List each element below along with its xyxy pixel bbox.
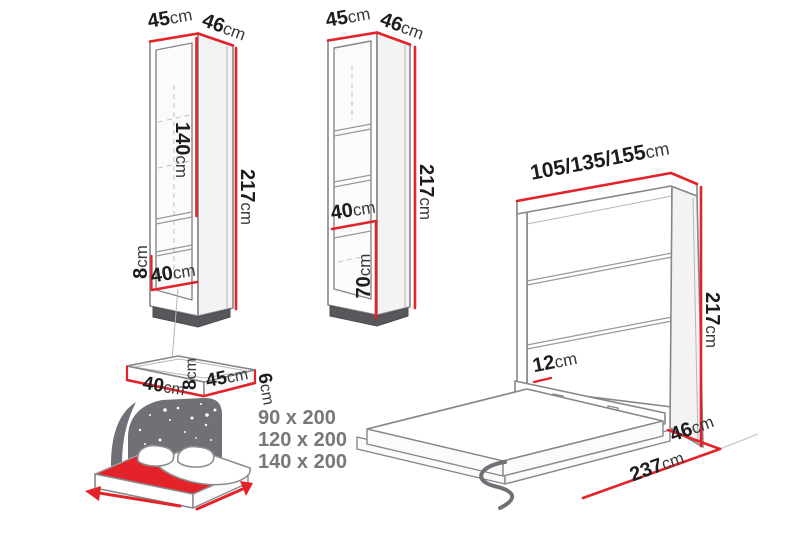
wall-bed-open-depth-label: 237cm — [627, 446, 687, 486]
bottom-shelf-height-label: 8cm — [180, 358, 201, 390]
bed-illustration — [85, 398, 253, 509]
wall-bed-side-panel — [670, 186, 703, 447]
size-option-2: 120 x 200 — [258, 429, 347, 451]
bed-pillow-left — [138, 446, 174, 467]
furniture-dimensions-diagram: 45cm 46cm 140cm 217cm 8cm 40cm 45cm 46cm… — [0, 0, 800, 533]
bed-pillow-right — [178, 447, 214, 468]
cabinet-open-height-label: 217cm — [415, 164, 437, 220]
mattress-size-list: 90 x 200 120 x 200 140 x 200 — [258, 407, 347, 473]
wall-bed-left-stile — [517, 203, 527, 389]
cabinet-closed-height-label: 217cm — [236, 169, 258, 225]
diagram-canvas: 45cm 46cm 140cm 217cm 8cm 40cm 45cm 46cm… — [0, 0, 800, 533]
bottom-shelf-side-height-label: 6cm — [253, 372, 279, 407]
cabinet-closed: 45cm 46cm 140cm 217cm 8cm 40cm — [130, 3, 258, 327]
cabinet-closed-inner-height-label: 140cm — [171, 122, 193, 178]
cabinet-open-lower-height-label: 70cm — [353, 254, 375, 299]
size-option-3: 140 x 200 — [258, 451, 347, 473]
cabinet-open: 45cm 46cm 217cm 40cm 70cm — [324, 2, 437, 326]
size-option-1: 90 x 200 — [258, 407, 336, 429]
cabinet-open-top-width-label: 45cm — [324, 2, 372, 31]
width-arrow-head — [85, 486, 101, 501]
cabinet-closed-base-height-label: 8cm — [130, 245, 152, 279]
cabinet-closed-top-width-label: 45cm — [146, 3, 194, 32]
cabinet-closed-side-face — [198, 34, 233, 316]
wall-bed-height-label: 217cm — [701, 292, 723, 348]
